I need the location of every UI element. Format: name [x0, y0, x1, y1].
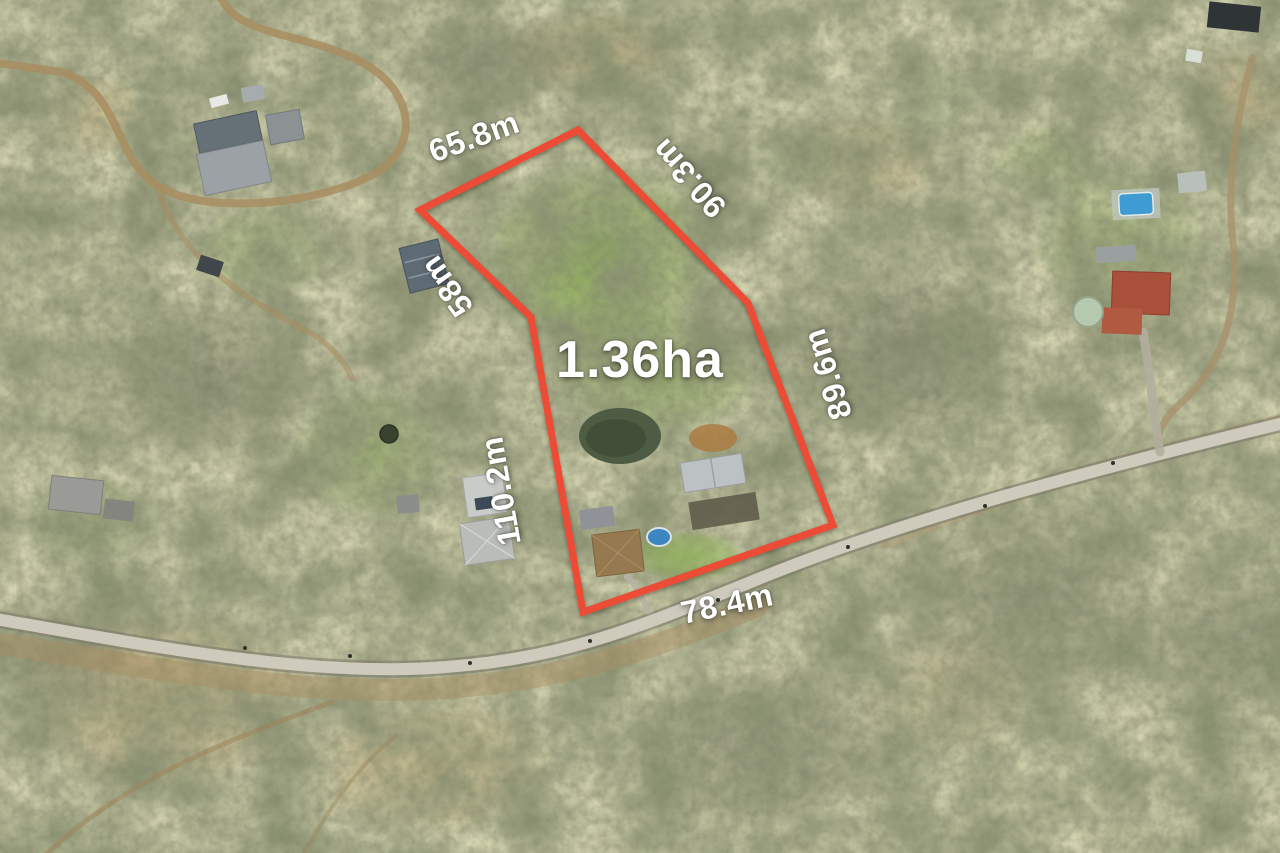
grey-shed-small	[1177, 171, 1207, 194]
pond-deep-water	[586, 419, 646, 457]
west-roof-1	[48, 475, 103, 514]
swimming-pool	[1118, 192, 1153, 216]
plunge-pool	[647, 528, 671, 546]
garden-shed	[579, 506, 615, 530]
west-roof-2	[103, 498, 135, 521]
water-tank	[1073, 297, 1103, 327]
area-label: 1.36ha	[556, 330, 724, 390]
aerial-photo-background	[0, 0, 1280, 853]
grey-shed-long	[1095, 245, 1136, 264]
red-roof-extension	[1102, 307, 1143, 334]
aerial-map: 1.36ha 65.8m 90.3m 58m 89.6m 110.2m 78.4…	[0, 0, 1280, 853]
west-shed	[396, 494, 419, 514]
trampoline	[380, 425, 398, 443]
east-roof	[266, 109, 305, 144]
bare-dirt-patch	[689, 424, 737, 452]
dark-building	[1207, 1, 1261, 32]
